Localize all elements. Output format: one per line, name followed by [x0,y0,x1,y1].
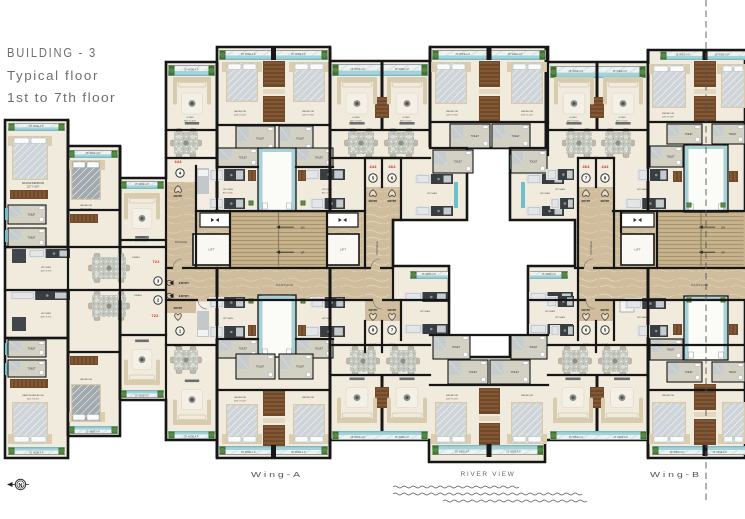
svg-text:TOILET: TOILET [728,134,737,136]
svg-text:20'0" X 6'10": 20'0" X 6'10" [400,120,413,122]
svg-text:8'0" X 9'0": 8'0" X 9'0" [223,192,233,194]
svg-text:25' WIDE A.P.: 25' WIDE A.P. [135,394,150,397]
svg-text:PASSAGE: PASSAGE [589,241,593,254]
svg-text:25' WIDE A.P.: 25' WIDE A.P. [351,436,366,439]
svg-text:LIFT: LIFT [208,248,214,252]
svg-text:25' WIDE A.P.: 25' WIDE A.P. [455,53,470,56]
svg-text:25' WIDE A.P.: 25' WIDE A.P. [291,451,306,454]
svg-text:25' WIDE A.P.: 25' WIDE A.P. [670,451,685,454]
svg-text:DN: DN [301,225,305,229]
svg-text:25' WIDE A.P.: 25' WIDE A.P. [715,53,730,56]
svg-text:N: N [19,483,23,489]
svg-text:1st to 7th floor: 1st to 7th floor [7,91,116,105]
svg-text:25' WIDE A.P.: 25' WIDE A.P. [291,53,306,56]
svg-text:UP: UP [721,250,725,254]
svg-text:722: 722 [151,313,159,318]
svg-text:TOILET: TOILET [296,367,305,369]
svg-text:20'0" X 6'10": 20'0" X 6'10" [350,120,363,122]
svg-text:25' WIDE A.P.: 25' WIDE A.P. [455,450,470,453]
svg-text:ENTRY: ENTRY [174,306,183,310]
svg-text:PASSAGE: PASSAGE [375,241,379,254]
svg-text:ENTRY: ENTRY [601,199,610,203]
svg-text:TOILET: TOILET [28,369,37,371]
svg-text:ENTRY: ENTRY [179,281,189,285]
svg-text:ENTRY: ENTRY [582,308,591,312]
svg-text:25' WIDE A.P.: 25' WIDE A.P. [184,435,199,438]
svg-text:25' WIDE A.P.: 25' WIDE A.P. [184,68,199,71]
svg-text:444: 444 [369,164,377,169]
svg-text:10'0" X 11'0": 10'0" X 11'0" [521,114,533,116]
svg-text:25' WIDE A.P.: 25' WIDE A.P. [676,53,691,56]
svg-text:DINING: DINING [134,295,142,297]
svg-text:DINING: DINING [132,257,140,259]
svg-text:BEDROOM: BEDROOM [80,379,91,381]
svg-text:ENTRY: ENTRY [582,199,591,203]
svg-text:BEDROOM: BEDROOM [234,111,245,113]
svg-text:BEDROOM: BEDROOM [446,111,457,113]
svg-text:LIVING: LIVING [352,117,359,119]
svg-text:10'0" X 11'0": 10'0" X 11'0" [302,114,314,116]
svg-text:10'5" X 7'0": 10'5" X 7'0" [40,316,51,318]
svg-text:KITCHEN: KITCHEN [545,311,555,313]
svg-text:11'0" X 10'0": 11'0" X 10'0" [27,186,40,188]
svg-text:ENTRY: ENTRY [369,308,378,312]
svg-text:LIFT: LIFT [340,248,346,252]
svg-text:LIVING: LIVING [186,117,193,119]
svg-text:LIVING: LIVING [402,117,409,119]
svg-text:25' WIDE A.P.: 25' WIDE A.P. [613,70,628,73]
svg-text:BUILDING - 3: BUILDING - 3 [7,46,97,60]
svg-text:LIFT: LIFT [634,248,640,252]
svg-text:TOILET: TOILET [239,158,248,160]
svg-text:ENTRY: ENTRY [388,199,397,203]
svg-text:TOILET: TOILET [685,372,694,374]
svg-text:BEDROOM: BEDROOM [521,395,532,397]
svg-text:KITCHEN: KITCHEN [223,189,233,191]
svg-text:MASTER BEDROOM: MASTER BEDROOM [22,182,44,185]
svg-text:25' WIDE A.P.: 25' WIDE A.P. [29,451,44,454]
svg-text:ENTRY: ENTRY [179,294,189,298]
svg-text:10'5" X 7'0": 10'5" X 7'0" [40,270,51,272]
svg-text:KITCHEN: KITCHEN [637,317,647,319]
svg-text:11'0" X 10'0": 11'0" X 10'0" [27,398,39,400]
svg-text:KITCHEN: KITCHEN [223,318,233,320]
svg-text:LIVING: LIVING [137,237,144,239]
svg-text:25' WIDE A.P.: 25' WIDE A.P. [713,451,728,454]
svg-text:25' WIDE A.P.: 25' WIDE A.P. [613,436,628,439]
svg-text:25' WIDE A.P.: 25' WIDE A.P. [86,430,101,433]
svg-text:KITCHEN: KITCHEN [41,267,51,269]
svg-text:10'0" X 11'0": 10'0" X 11'0" [446,398,458,400]
svg-text:KITCHEN: KITCHEN [427,193,437,195]
svg-text:ENTRY: ENTRY [388,308,397,312]
svg-text:LIVING: LIVING [569,117,576,119]
svg-text:25' WIDE A.P.: 25' WIDE A.P. [569,70,584,73]
svg-text:25' WIDE A.P.: 25' WIDE A.P. [395,68,410,71]
svg-text:TOILET: TOILET [315,158,324,160]
svg-text:BEDROOM: BEDROOM [521,111,532,113]
svg-text:25' WIDE A.P.: 25' WIDE A.P. [506,450,521,453]
svg-text:464: 464 [388,164,396,169]
svg-text:TOILET: TOILET [666,350,675,352]
svg-text:KITCHEN: KITCHEN [555,317,565,319]
svg-text:20'0" X 10'5": 20'0" X 10'5" [184,120,197,122]
svg-text:25' WIDE A.P.: 25' WIDE A.P. [241,53,256,56]
svg-text:444: 444 [601,164,609,169]
svg-text:DN: DN [721,225,725,229]
svg-text:ENTRY: ENTRY [369,199,378,203]
svg-text:BEDROOM: BEDROOM [662,395,673,397]
svg-text:TOILET: TOILET [296,139,305,141]
svg-text:25' WIDE A.P.: 25' WIDE A.P. [29,125,44,128]
svg-text:TOILET: TOILET [28,349,37,351]
svg-text:TOILET: TOILET [256,139,265,141]
svg-text:TOILET: TOILET [28,215,37,217]
svg-text:25' WIDE A.P.: 25' WIDE A.P. [569,436,584,439]
svg-text:25' WIDE A.P.: 25' WIDE A.P. [542,273,557,276]
svg-text:KITCHEN: KITCHEN [41,313,51,315]
svg-text:TOILET: TOILET [529,347,538,349]
svg-text:Wing-B: Wing-B [650,470,702,479]
svg-text:BEDROOM: BEDROOM [302,111,313,113]
svg-text:BEDROOM: BEDROOM [302,397,313,399]
svg-text:TOILET: TOILET [454,162,463,164]
svg-text:TOILET: TOILET [685,134,694,136]
svg-text:TOILET: TOILET [452,347,461,349]
svg-text:25' WIDE A.P.: 25' WIDE A.P. [422,273,437,276]
svg-text:ENTRY: ENTRY [601,308,610,312]
svg-text:KITCHEN: KITCHEN [555,189,565,191]
svg-text:BEDROOM: BEDROOM [80,205,91,207]
svg-text:TOILET: TOILET [256,367,265,369]
svg-text:TOILET: TOILET [239,349,248,351]
svg-text:25' WIDE A.P.: 25' WIDE A.P. [241,451,256,454]
svg-text:BEDROOM: BEDROOM [446,395,457,397]
svg-text:TOILET: TOILET [471,136,480,138]
svg-text:TOILET: TOILET [315,349,324,351]
svg-text:10'0" X 11'0": 10'0" X 11'0" [662,116,674,118]
svg-text:25' WIDE A.P.: 25' WIDE A.P. [135,183,150,186]
svg-text:722: 722 [152,259,160,264]
svg-text:444: 444 [174,159,182,164]
svg-text:20'0" X 6'10": 20'0" X 6'10" [567,120,580,122]
svg-text:TOILET: TOILET [666,157,675,159]
svg-text:PASSAGE: PASSAGE [175,240,187,244]
svg-text:MASTER BEDROOM: MASTER BEDROOM [22,394,43,397]
svg-text:TOILET: TOILET [28,238,37,240]
svg-text:KITCHEN: KITCHEN [420,311,430,313]
svg-text:Wing-A: Wing-A [251,470,303,479]
svg-text:TOILET: TOILET [469,372,478,374]
svg-text:10'0" X 11'0": 10'0" X 11'0" [234,400,246,402]
svg-text:RIVER VIEW: RIVER VIEW [461,472,516,478]
svg-text:TOILET: TOILET [511,372,520,374]
svg-text:BEDROOM: BEDROOM [662,113,673,115]
svg-text:25' WIDE A.P.: 25' WIDE A.P. [395,436,410,439]
svg-text:464: 464 [582,164,590,169]
svg-text:TOILET: TOILET [728,372,737,374]
svg-text:10'0" X 11'0": 10'0" X 11'0" [446,114,458,116]
svg-text:BEDROOM: BEDROOM [234,397,245,399]
svg-text:25' WIDE A.P.: 25' WIDE A.P. [508,53,523,56]
svg-text:UP: UP [301,250,305,254]
svg-text:Typical floor: Typical floor [7,69,99,83]
svg-text:TOILET: TOILET [512,136,521,138]
svg-text:TOILET: TOILET [529,162,538,164]
svg-text:20'0" X 6'10": 20'0" X 6'10" [616,120,629,122]
svg-text:10'0" X 11'0": 10'0" X 11'0" [234,114,246,116]
svg-text:KITCHEN: KITCHEN [637,189,647,191]
svg-text:LIVING: LIVING [618,117,625,119]
svg-text:KITCHEN: KITCHEN [540,193,550,195]
svg-text:PASSAGE: PASSAGE [276,283,294,287]
svg-text:25' WIDE A.P.: 25' WIDE A.P. [351,68,366,71]
svg-text:25' WIDE A.P.: 25' WIDE A.P. [86,152,101,155]
svg-text:ENTRY: ENTRY [174,194,183,198]
